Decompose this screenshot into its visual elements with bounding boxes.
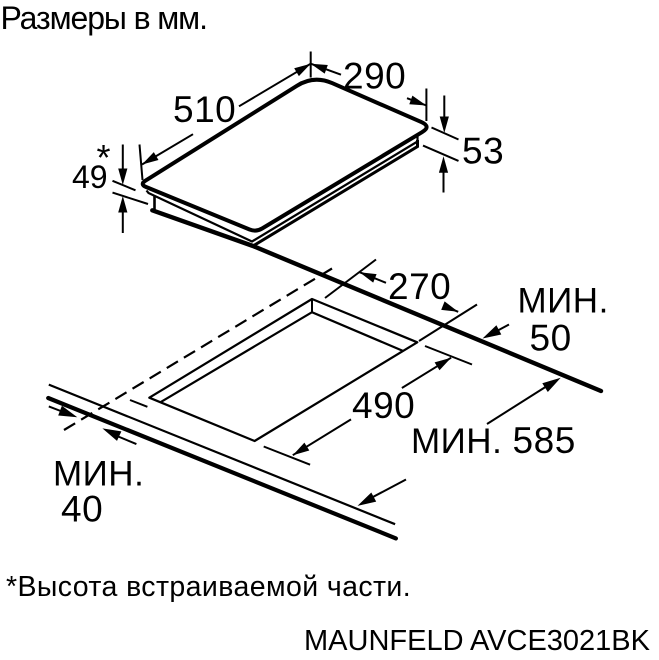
svg-text:*: * <box>97 137 111 178</box>
svg-text:270: 270 <box>388 266 451 307</box>
svg-text:МИН.: МИН. <box>53 455 144 494</box>
svg-text:40: 40 <box>61 489 103 530</box>
svg-text:Размеры в мм.: Размеры в мм. <box>1 0 207 36</box>
svg-text:290: 290 <box>343 56 406 97</box>
svg-text:МИН. 585: МИН. 585 <box>411 420 576 461</box>
svg-text:53: 53 <box>462 131 504 172</box>
svg-text:*Высота встраиваемой части.: *Высота встраиваемой части. <box>6 571 411 603</box>
svg-text:490: 490 <box>352 385 415 426</box>
svg-text:МИН.: МИН. <box>518 282 609 321</box>
svg-text:50: 50 <box>530 318 572 359</box>
svg-text:510: 510 <box>173 89 236 130</box>
svg-text:MAUNFELD AVCE3021BK: MAUNFELD AVCE3021BK <box>304 625 651 657</box>
